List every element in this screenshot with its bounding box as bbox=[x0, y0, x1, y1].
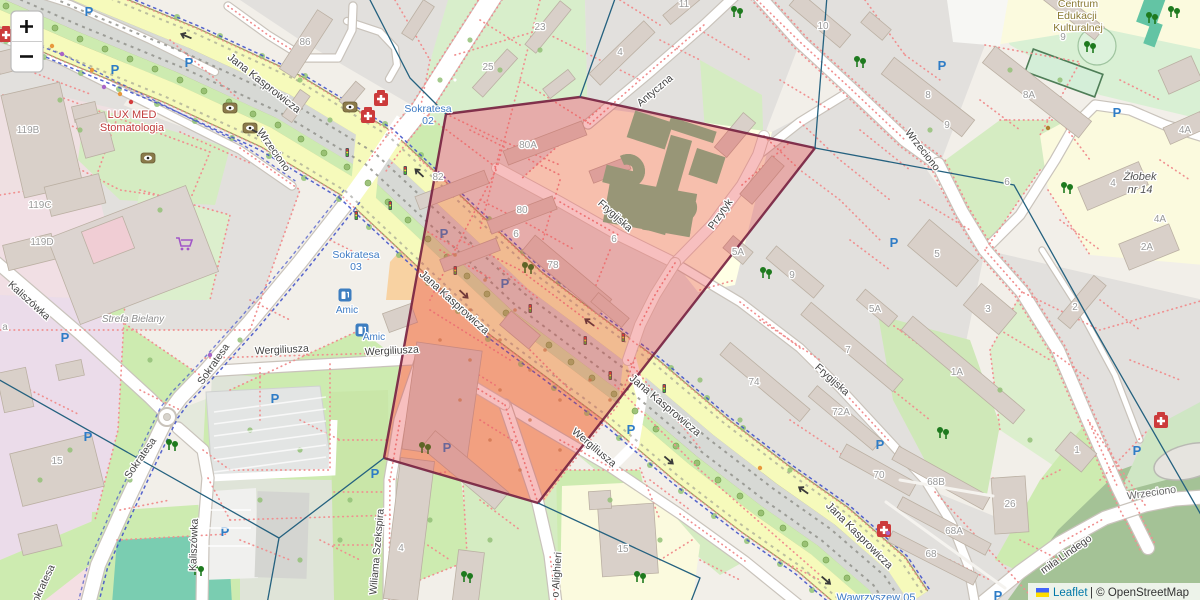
svg-text:119C: 119C bbox=[28, 200, 51, 211]
svg-text:10: 10 bbox=[817, 21, 829, 32]
svg-text:70: 70 bbox=[873, 470, 885, 481]
svg-text:1: 1 bbox=[1074, 445, 1080, 456]
svg-text:nr 14: nr 14 bbox=[1127, 184, 1152, 196]
svg-text:P: P bbox=[61, 330, 70, 345]
svg-text:4: 4 bbox=[1110, 178, 1116, 189]
svg-text:6: 6 bbox=[513, 229, 519, 240]
svg-text:P: P bbox=[1113, 105, 1122, 120]
svg-text:80: 80 bbox=[516, 205, 528, 216]
svg-text:Amic: Amic bbox=[363, 332, 385, 343]
svg-text:5A: 5A bbox=[732, 247, 745, 258]
svg-text:3: 3 bbox=[985, 304, 991, 315]
svg-text:P: P bbox=[994, 588, 1003, 600]
svg-text:23: 23 bbox=[534, 22, 546, 33]
svg-text:80A: 80A bbox=[519, 140, 537, 151]
svg-text:Żłobek: Żłobek bbox=[1122, 171, 1157, 183]
svg-text:P: P bbox=[221, 524, 230, 539]
svg-text:Strefa Bielany: Strefa Bielany bbox=[102, 314, 165, 325]
svg-text:LUX MED: LUX MED bbox=[108, 109, 157, 121]
svg-text:74: 74 bbox=[748, 377, 760, 388]
svg-text:9: 9 bbox=[789, 270, 795, 281]
svg-text:Wawrzyszew 05: Wawrzyszew 05 bbox=[836, 592, 915, 600]
svg-text:7: 7 bbox=[845, 345, 851, 356]
svg-text:11: 11 bbox=[679, 0, 690, 10]
svg-text:6: 6 bbox=[1004, 177, 1010, 188]
svg-text:8A: 8A bbox=[1023, 90, 1036, 101]
svg-text:4A: 4A bbox=[1179, 125, 1192, 136]
svg-text:4: 4 bbox=[617, 47, 623, 58]
svg-text:Edukacji: Edukacji bbox=[1057, 10, 1097, 22]
svg-text:119D: 119D bbox=[30, 237, 53, 248]
svg-text:25: 25 bbox=[482, 62, 494, 73]
svg-text:P: P bbox=[1133, 443, 1142, 458]
svg-text:Amic: Amic bbox=[336, 305, 358, 316]
svg-text:2: 2 bbox=[1072, 302, 1078, 313]
svg-text:P: P bbox=[371, 466, 380, 481]
svg-text:Sokratesa: Sokratesa bbox=[332, 249, 379, 261]
svg-text:Leaflet: Leaflet bbox=[1053, 587, 1088, 599]
svg-text:68A: 68A bbox=[945, 526, 963, 537]
svg-text:86: 86 bbox=[299, 37, 311, 48]
svg-text:Centrum: Centrum bbox=[1058, 0, 1099, 10]
svg-text:15: 15 bbox=[51, 456, 63, 467]
svg-text:68: 68 bbox=[925, 549, 937, 560]
svg-text:26: 26 bbox=[1004, 499, 1016, 510]
svg-text:P: P bbox=[876, 437, 885, 452]
svg-text:82: 82 bbox=[432, 172, 444, 183]
svg-text:Kaliszówka: Kaliszówka bbox=[187, 518, 201, 571]
svg-text:8: 8 bbox=[925, 90, 931, 101]
svg-text:Stomatologia: Stomatologia bbox=[100, 122, 165, 134]
svg-text:119B: 119B bbox=[17, 125, 40, 136]
svg-text:72A: 72A bbox=[832, 407, 850, 418]
svg-text:9: 9 bbox=[944, 120, 950, 131]
svg-text:9: 9 bbox=[1060, 32, 1066, 43]
svg-text:2A: 2A bbox=[1141, 242, 1154, 253]
svg-text:P: P bbox=[185, 55, 194, 70]
svg-text:15: 15 bbox=[617, 544, 629, 555]
svg-text:5A: 5A bbox=[869, 304, 882, 315]
svg-text:02: 02 bbox=[422, 115, 434, 127]
svg-text:P: P bbox=[111, 62, 120, 77]
svg-text:Sokratesa: Sokratesa bbox=[404, 103, 451, 115]
svg-text:P: P bbox=[85, 4, 94, 19]
svg-text:03: 03 bbox=[350, 261, 362, 273]
svg-text:78: 78 bbox=[547, 260, 559, 271]
svg-text:5: 5 bbox=[934, 249, 940, 260]
svg-text:P: P bbox=[627, 422, 636, 437]
svg-text:| © OpenStreetMap: | © OpenStreetMap bbox=[1090, 587, 1189, 599]
svg-text:4: 4 bbox=[398, 543, 404, 554]
svg-text:1A: 1A bbox=[951, 367, 964, 378]
svg-text:68B: 68B bbox=[927, 477, 945, 488]
svg-text:P: P bbox=[890, 235, 899, 250]
svg-text:a: a bbox=[2, 322, 8, 333]
svg-text:P: P bbox=[938, 58, 947, 73]
svg-text:6: 6 bbox=[611, 234, 617, 245]
svg-text:4A: 4A bbox=[1154, 214, 1167, 225]
